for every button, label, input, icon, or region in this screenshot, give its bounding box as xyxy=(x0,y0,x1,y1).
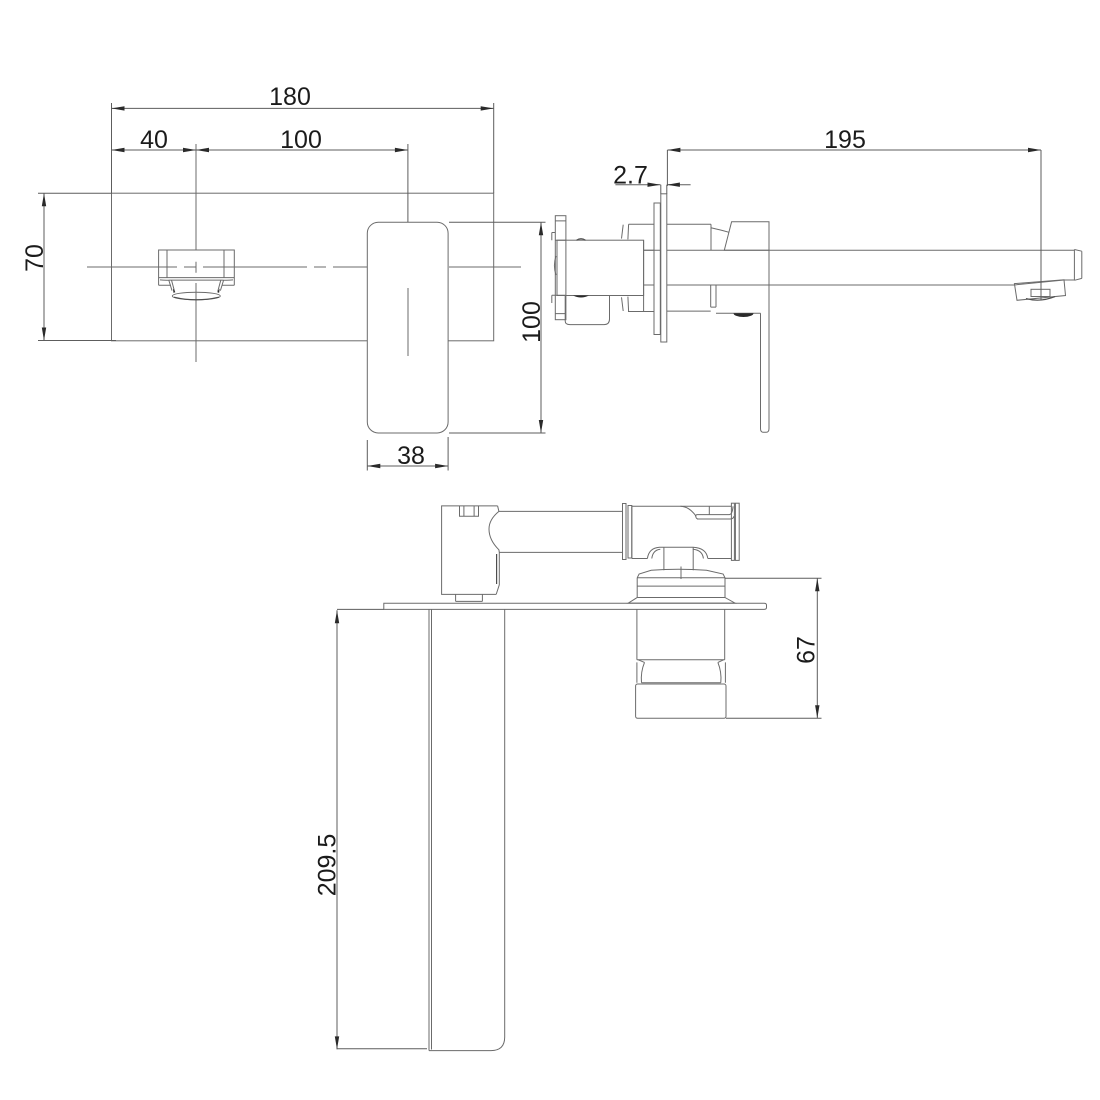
svg-text:100: 100 xyxy=(280,126,322,154)
svg-text:2.7: 2.7 xyxy=(613,162,648,190)
svg-text:209.5: 209.5 xyxy=(314,834,342,897)
svg-text:40: 40 xyxy=(140,126,168,154)
svg-text:180: 180 xyxy=(269,83,311,111)
svg-text:67: 67 xyxy=(793,636,821,664)
svg-text:100: 100 xyxy=(518,301,546,343)
svg-text:70: 70 xyxy=(21,244,49,272)
svg-text:38: 38 xyxy=(397,442,425,470)
svg-text:195: 195 xyxy=(824,126,866,154)
